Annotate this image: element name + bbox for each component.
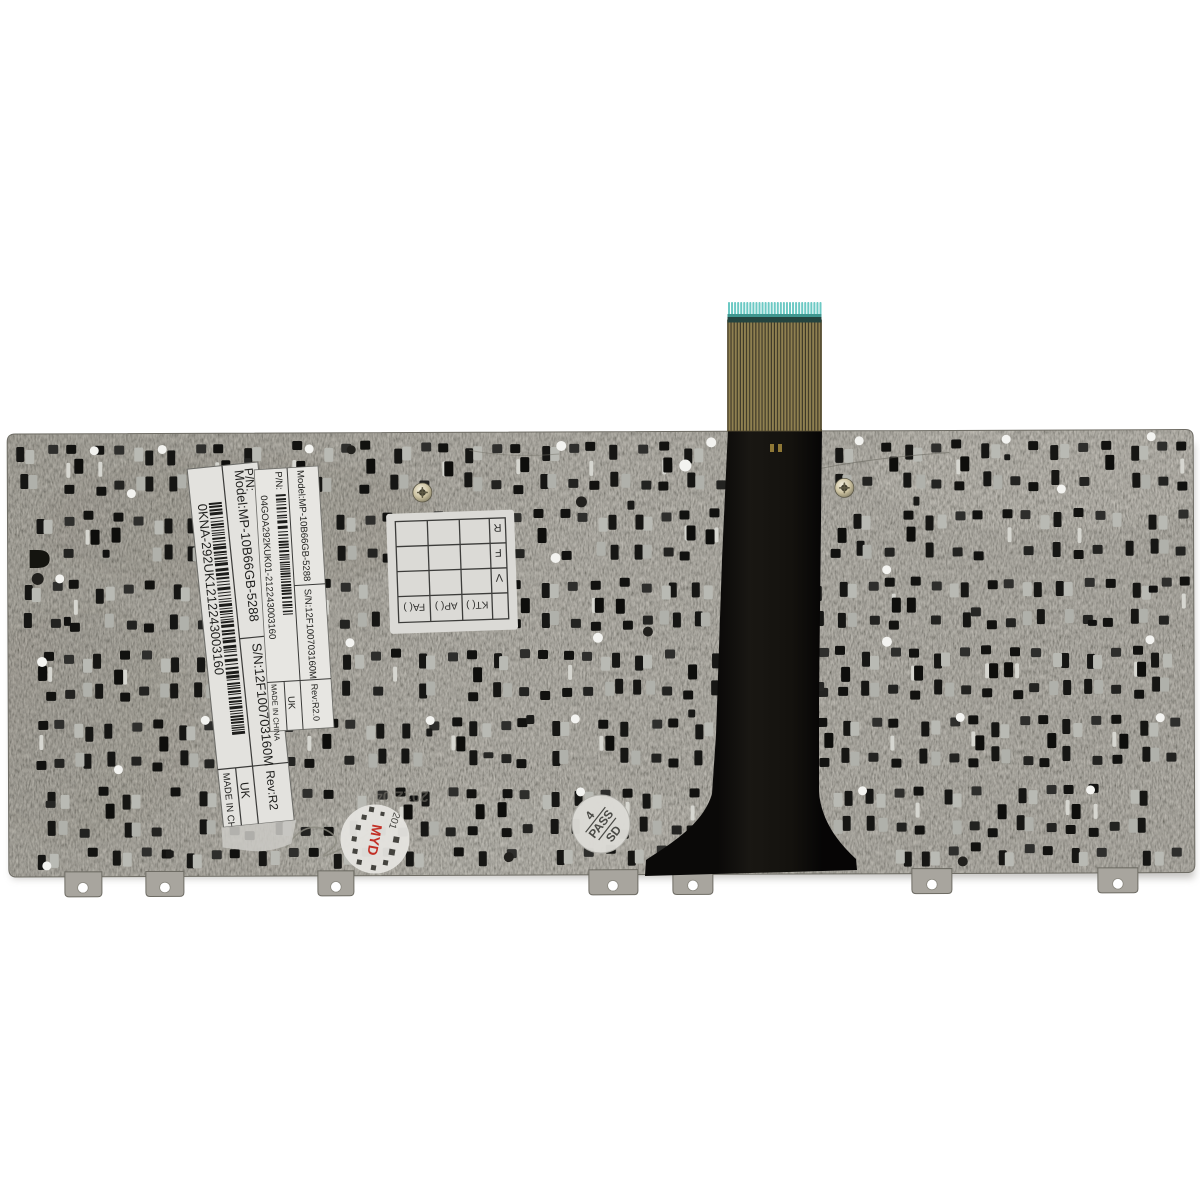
- svg-text:R: R: [493, 521, 501, 533]
- svg-text:UK: UK: [285, 696, 297, 711]
- svg-text:P/N:: P/N:: [272, 471, 284, 490]
- svg-text:2012.04: 2012.04: [374, 787, 429, 804]
- svg-text:UK: UK: [237, 781, 253, 799]
- svg-text:KT( ): KT( ): [466, 598, 489, 610]
- svg-text:V: V: [495, 571, 503, 583]
- svg-text:FA( ): FA( ): [403, 601, 425, 613]
- svg-text:AP( ): AP( ): [435, 600, 458, 612]
- svg-text:F: F: [495, 546, 502, 558]
